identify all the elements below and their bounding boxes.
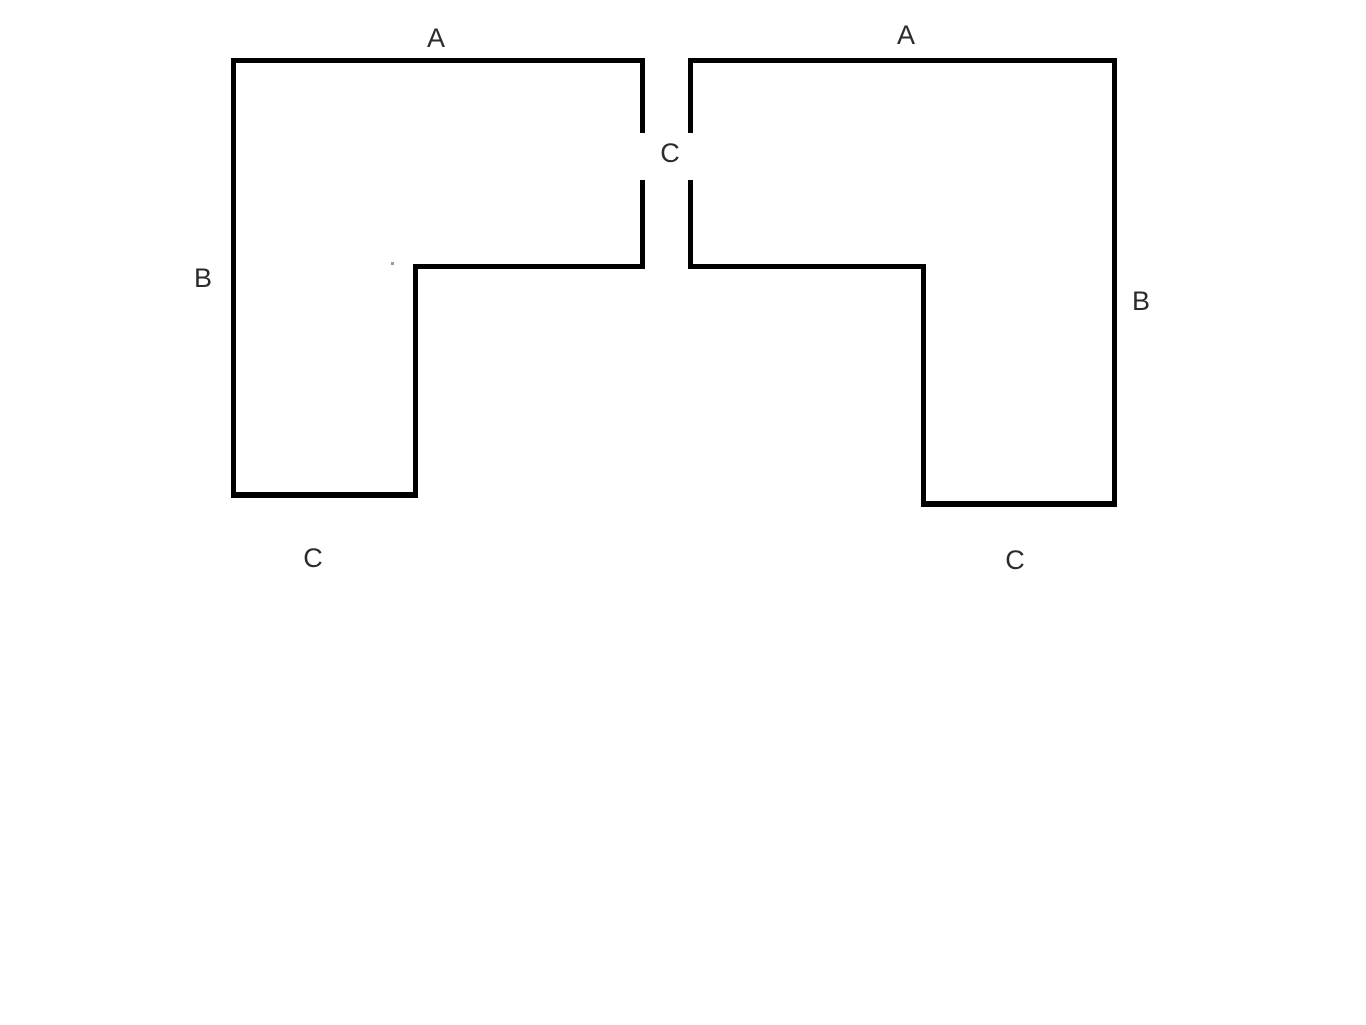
svg-text:B: B (194, 263, 212, 293)
svg-text:A: A (897, 20, 915, 50)
svg-text:C: C (660, 138, 680, 168)
svg-text:C: C (303, 543, 323, 573)
svg-text:C: C (1005, 545, 1025, 575)
svg-text:B: B (1132, 286, 1150, 316)
svg-text:A: A (427, 23, 445, 53)
